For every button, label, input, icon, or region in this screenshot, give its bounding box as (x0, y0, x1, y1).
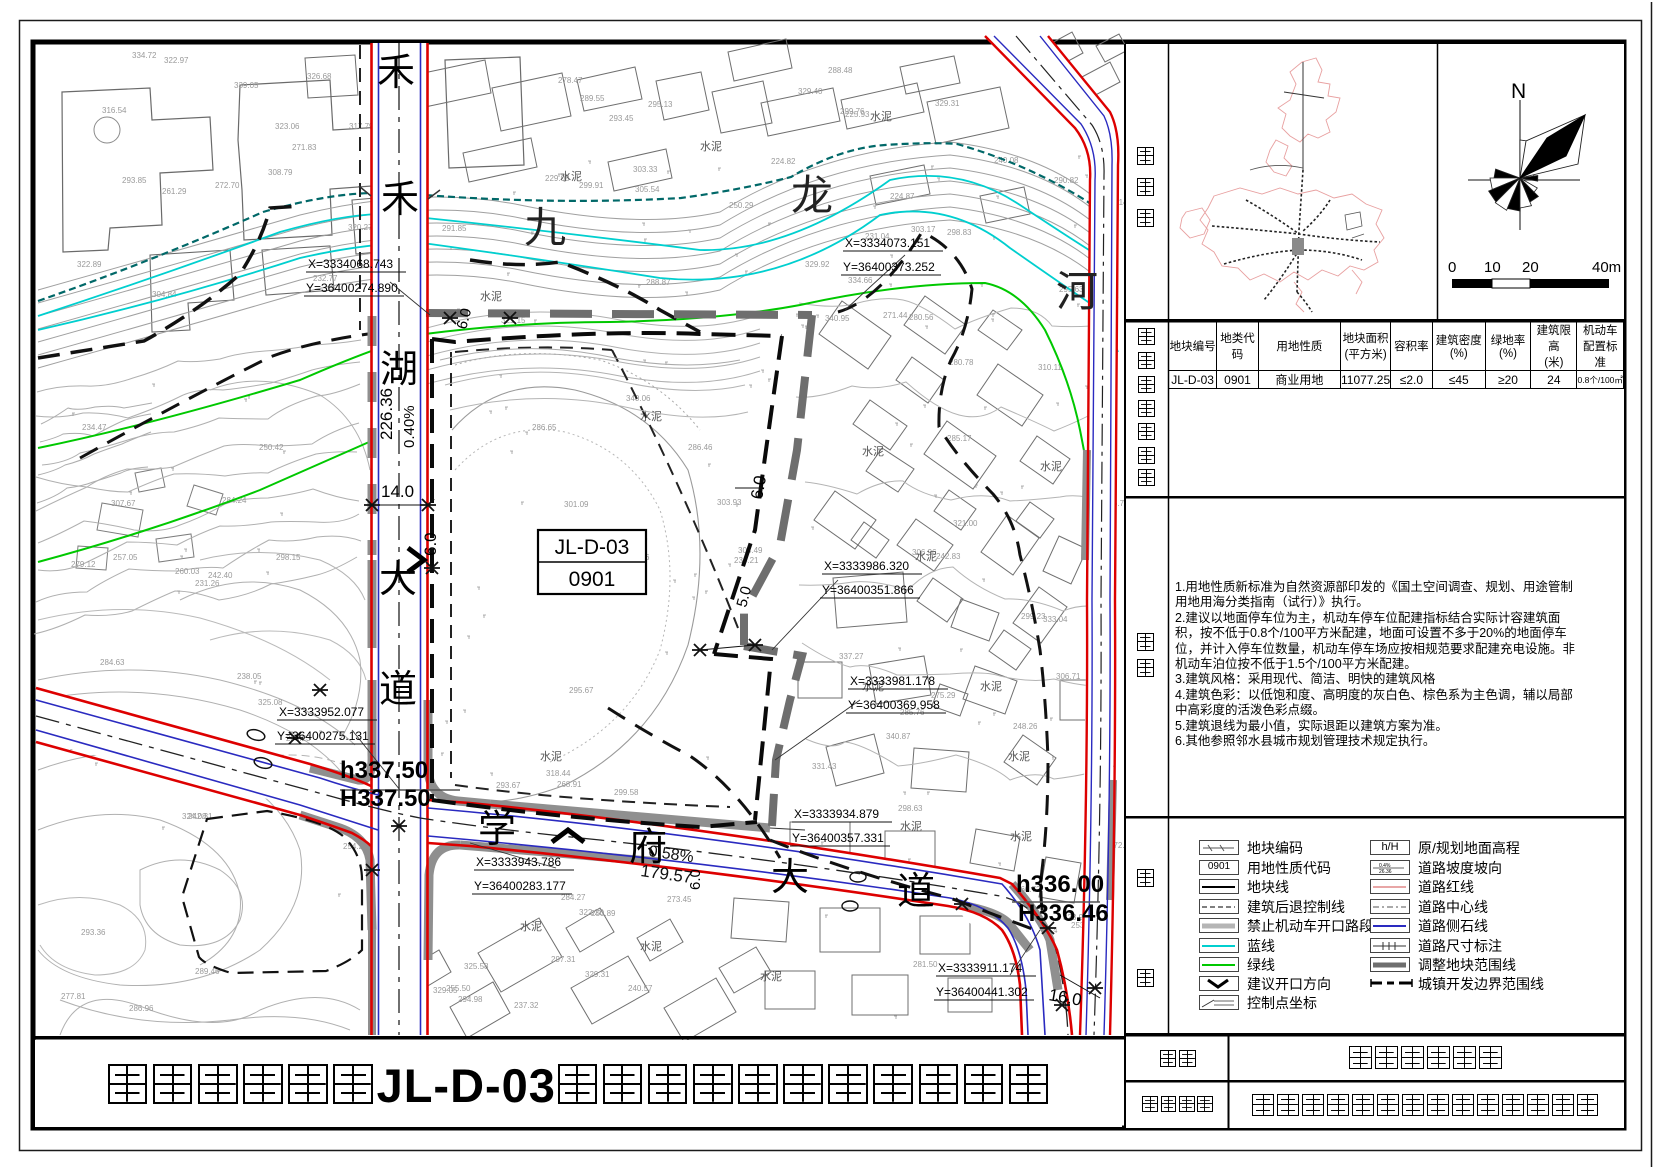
svg-text:水泥: 水泥 (560, 170, 582, 183)
svg-text:257.05: 257.05 (113, 553, 138, 562)
svg-text:河: 河 (1056, 268, 1098, 315)
svg-text:237.32: 237.32 (514, 1001, 539, 1010)
svg-text:X=3333911.174: X=3333911.174 (938, 961, 1023, 975)
svg-text:6.0: 6.0 (747, 474, 770, 501)
svg-text:Y=36400373.252: Y=36400373.252 (843, 260, 935, 274)
svg-text:329.92: 329.92 (805, 260, 830, 269)
svg-text:240.57: 240.57 (628, 984, 653, 993)
svg-text:h336.00: h336.00 (1016, 871, 1104, 898)
svg-text:281.50: 281.50 (913, 960, 938, 969)
svg-text:322.97: 322.97 (164, 56, 189, 65)
svg-text:h337.50: h337.50 (340, 757, 428, 784)
svg-text:293.67: 293.67 (496, 781, 521, 790)
svg-text:279.12: 279.12 (71, 560, 96, 569)
svg-text:水泥: 水泥 (915, 550, 937, 563)
svg-text:26.36: 26.36 (1379, 869, 1392, 874)
svg-text:大: 大 (379, 559, 417, 601)
svg-text:6.0: 6.0 (421, 532, 440, 556)
svg-text:295.67: 295.67 (569, 686, 594, 695)
svg-text:299.91: 299.91 (579, 181, 604, 190)
svg-text:271.44: 271.44 (883, 311, 908, 320)
svg-text:340.06: 340.06 (626, 394, 651, 403)
svg-text:316.54: 316.54 (102, 106, 127, 115)
svg-text:334.66: 334.66 (848, 276, 873, 285)
svg-text:284.63: 284.63 (100, 658, 125, 667)
svg-text:231.26: 231.26 (195, 579, 220, 588)
svg-text:333.04: 333.04 (1043, 615, 1068, 624)
svg-text:329.40: 329.40 (798, 87, 823, 96)
svg-text:226.36: 226.36 (377, 388, 396, 440)
svg-text:0901: 0901 (569, 568, 616, 591)
svg-text:242.40: 242.40 (208, 571, 233, 580)
svg-text:293.36: 293.36 (81, 928, 106, 937)
svg-text:水泥: 水泥 (1040, 460, 1062, 473)
svg-text:272.70: 272.70 (215, 181, 240, 190)
svg-text:298.15: 298.15 (276, 553, 301, 562)
svg-text:260.03: 260.03 (175, 567, 200, 576)
svg-text:九: 九 (524, 204, 566, 251)
svg-text:水泥: 水泥 (870, 110, 892, 123)
svg-text:大: 大 (771, 857, 809, 899)
svg-text:334.72: 334.72 (132, 51, 157, 60)
svg-text:Y=36400283.177: Y=36400283.177 (474, 879, 566, 893)
svg-text:道: 道 (379, 669, 417, 711)
svg-text:303.93: 303.93 (717, 498, 742, 507)
svg-text:286.46: 286.46 (688, 443, 713, 452)
svg-text:273.45: 273.45 (667, 895, 692, 904)
svg-text:329.05: 329.05 (433, 986, 458, 995)
svg-text:340.87: 340.87 (886, 732, 911, 741)
svg-text:290.82: 290.82 (1054, 176, 1079, 185)
svg-text:326.68: 326.68 (307, 72, 332, 81)
svg-text:0: 0 (1448, 259, 1456, 276)
svg-text:水泥: 水泥 (480, 290, 502, 303)
svg-text:242.83: 242.83 (936, 552, 961, 561)
svg-text:224.82: 224.82 (771, 157, 796, 166)
svg-text:0.40%: 0.40% (401, 405, 418, 448)
svg-text:293.85: 293.85 (122, 176, 147, 185)
svg-text:10: 10 (1484, 259, 1501, 276)
svg-text:293.45: 293.45 (609, 114, 634, 123)
svg-text:323.06: 323.06 (275, 122, 300, 131)
svg-text:Y=36400441.302: Y=36400441.302 (936, 985, 1028, 999)
svg-text:325.58: 325.58 (464, 962, 489, 971)
svg-text:Y=36400357.331: Y=36400357.331 (792, 831, 884, 845)
svg-text:331.43: 331.43 (812, 762, 837, 771)
svg-text:321.00: 321.00 (953, 519, 978, 528)
svg-text:禾: 禾 (377, 52, 415, 94)
svg-text:X=3333943.786: X=3333943.786 (476, 855, 561, 869)
svg-text:285.17: 285.17 (947, 434, 972, 443)
svg-text:Y=36400275.131: Y=36400275.131 (277, 729, 369, 743)
svg-text:322.28: 322.28 (579, 908, 604, 917)
svg-text:268.91: 268.91 (557, 780, 582, 789)
svg-text:湖: 湖 (380, 349, 418, 391)
svg-text:234.47: 234.47 (82, 423, 107, 432)
svg-text:X=3333934.879: X=3333934.879 (794, 807, 879, 821)
svg-text:278.47: 278.47 (558, 76, 583, 85)
svg-text:Y=36400274.890: Y=36400274.890 (306, 281, 398, 295)
svg-text:学: 学 (478, 809, 516, 851)
svg-text:305.54: 305.54 (635, 185, 660, 194)
svg-text:水泥: 水泥 (1010, 830, 1032, 843)
svg-text:299.76: 299.76 (840, 107, 865, 116)
svg-text:水泥: 水泥 (980, 680, 1002, 693)
svg-text:250.29: 250.29 (729, 201, 754, 210)
svg-text:298.83: 298.83 (947, 228, 972, 237)
svg-text:X=3333952.077: X=3333952.077 (279, 705, 364, 719)
svg-text:224.87: 224.87 (890, 192, 915, 201)
svg-text:H336.46: H336.46 (1018, 900, 1109, 927)
svg-text:295.13: 295.13 (648, 100, 673, 109)
svg-text:水泥: 水泥 (760, 970, 782, 983)
svg-text:水泥: 水泥 (700, 140, 722, 153)
svg-text:水泥: 水泥 (520, 920, 542, 933)
svg-text:289.55: 289.55 (580, 94, 605, 103)
svg-text:291.85: 291.85 (442, 224, 467, 233)
svg-text:339.05: 339.05 (234, 81, 259, 90)
svg-text:14.0: 14.0 (381, 482, 414, 501)
svg-text:294.98: 294.98 (458, 995, 483, 1004)
svg-text:301.09: 301.09 (564, 500, 589, 509)
svg-text:水泥: 水泥 (1008, 750, 1030, 763)
svg-text:308.79: 308.79 (268, 168, 293, 177)
svg-text:337.27: 337.27 (839, 652, 864, 661)
svg-text:303.33: 303.33 (633, 165, 658, 174)
svg-text:禾: 禾 (381, 179, 419, 221)
svg-text:X=3333986.320: X=3333986.320 (824, 559, 909, 573)
svg-text:298.63: 298.63 (898, 804, 923, 813)
svg-text:303.17: 303.17 (911, 225, 936, 234)
svg-text:40m: 40m (1592, 259, 1621, 276)
svg-text:水泥: 水泥 (900, 820, 922, 833)
svg-text:322.89: 322.89 (77, 260, 102, 269)
svg-text:286.96: 286.96 (129, 1004, 154, 1013)
svg-text:JL-D-03: JL-D-03 (555, 536, 630, 559)
svg-text:N: N (1511, 80, 1526, 103)
svg-text:X=3334073.151: X=3334073.151 (845, 236, 930, 250)
svg-text:306.71: 306.71 (1056, 672, 1081, 681)
svg-text:X=3333981.178: X=3333981.178 (850, 674, 935, 688)
svg-text:Y=36400351.866: Y=36400351.866 (822, 583, 914, 597)
svg-text:20: 20 (1522, 259, 1539, 276)
svg-text:310.11: 310.11 (1038, 363, 1062, 372)
svg-text:329.31: 329.31 (585, 970, 610, 979)
svg-text:277.81: 277.81 (61, 992, 86, 1001)
svg-text:238.05: 238.05 (237, 672, 262, 681)
svg-text:水泥: 水泥 (640, 940, 662, 953)
svg-text:288.48: 288.48 (828, 66, 853, 75)
svg-text:299.58: 299.58 (614, 788, 639, 797)
svg-text:280.56: 280.56 (909, 313, 934, 322)
svg-text:X=3334068.743: X=3334068.743 (308, 257, 393, 271)
svg-text:271.83: 271.83 (292, 143, 317, 152)
svg-text:250.42: 250.42 (259, 443, 284, 452)
svg-text:324.08: 324.08 (182, 812, 207, 821)
svg-text:340.95: 340.95 (825, 314, 850, 323)
svg-text:307.67: 307.67 (111, 499, 136, 508)
svg-text:水泥: 水泥 (540, 750, 562, 763)
svg-text:318.44: 318.44 (546, 769, 571, 778)
svg-text:H337.50: H337.50 (340, 785, 431, 812)
svg-text:329.31: 329.31 (935, 99, 960, 108)
svg-text:261.29: 261.29 (162, 187, 187, 196)
svg-text:道: 道 (897, 871, 935, 913)
svg-text:水泥: 水泥 (862, 445, 884, 458)
svg-text:龙: 龙 (791, 172, 833, 219)
svg-text:297.31: 297.31 (551, 955, 576, 964)
svg-text:286.65: 286.65 (532, 423, 557, 432)
svg-text:Y=36400369.958: Y=36400369.958 (848, 698, 940, 712)
svg-text:248.26: 248.26 (1013, 722, 1038, 731)
